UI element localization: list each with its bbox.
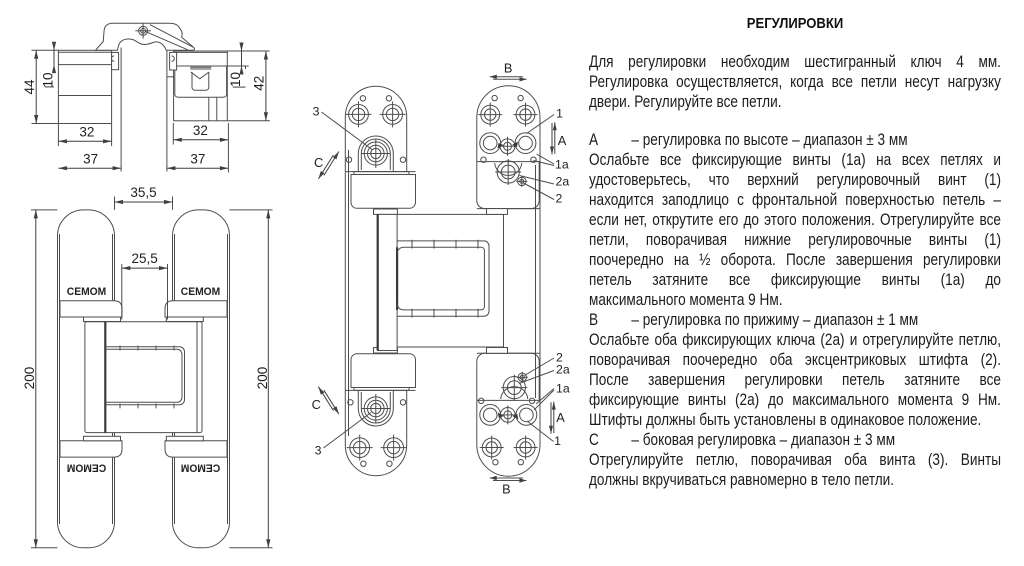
- svg-text:200: 200: [22, 367, 37, 390]
- svg-text:C: C: [312, 397, 321, 412]
- svg-text:25,5: 25,5: [131, 251, 157, 266]
- svg-text:C: C: [314, 155, 323, 170]
- svg-text:2a: 2a: [556, 175, 570, 189]
- svg-text:CEMOM: CEMOM: [181, 461, 221, 473]
- svg-text:B: B: [504, 60, 513, 75]
- svg-text:CEMOM: CEMOM: [181, 286, 221, 298]
- svg-text:42: 42: [252, 76, 267, 91]
- svg-text:10: 10: [228, 72, 243, 87]
- svg-text:A: A: [556, 410, 565, 425]
- svg-text:1: 1: [556, 107, 563, 121]
- svg-text:32: 32: [79, 125, 94, 140]
- svg-text:37: 37: [190, 151, 205, 166]
- svg-text:35,5: 35,5: [130, 185, 156, 200]
- svg-text:1: 1: [554, 434, 561, 448]
- svg-text:44: 44: [22, 79, 37, 95]
- svg-text:3: 3: [315, 444, 322, 458]
- svg-text:32: 32: [193, 123, 208, 138]
- svg-text:1a: 1a: [556, 382, 570, 396]
- svg-text:37: 37: [83, 151, 98, 166]
- svg-text:1a: 1a: [555, 158, 569, 172]
- svg-text:B: B: [502, 482, 511, 497]
- svg-text:2a: 2a: [556, 363, 570, 377]
- svg-text:CEMOM: CEMOM: [67, 461, 107, 473]
- svg-text:3: 3: [313, 105, 320, 119]
- svg-text:200: 200: [255, 367, 270, 390]
- svg-text:CEMOM: CEMOM: [67, 286, 107, 298]
- svg-text:10: 10: [40, 72, 55, 87]
- svg-text:2: 2: [556, 192, 563, 206]
- svg-text:A: A: [558, 133, 567, 148]
